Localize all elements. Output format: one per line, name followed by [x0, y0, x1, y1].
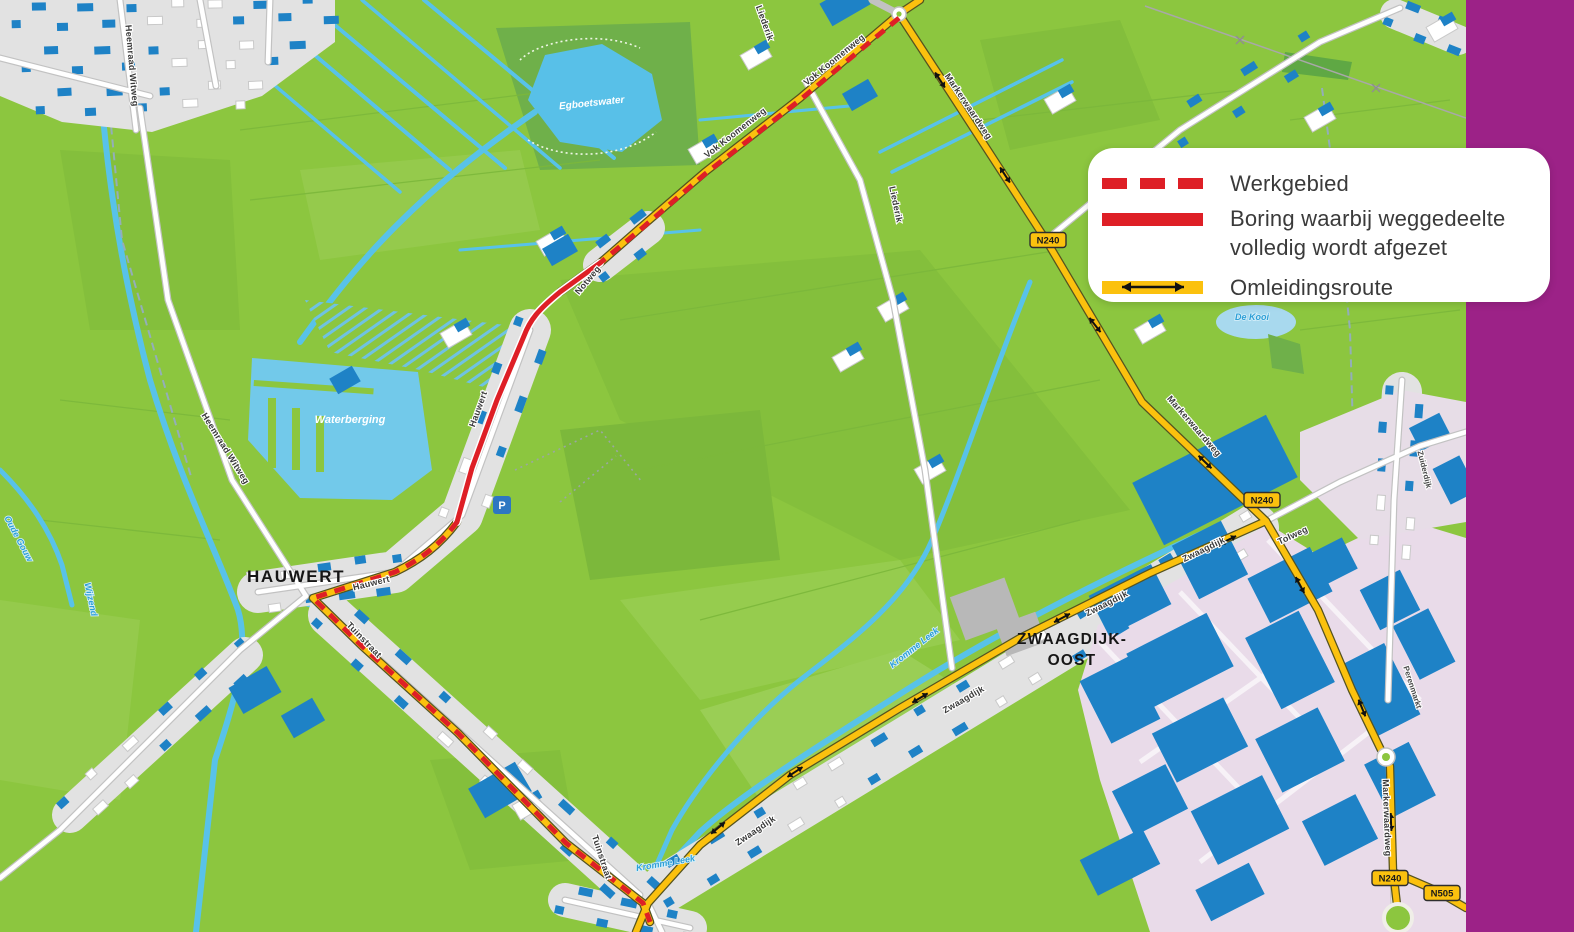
legend-label: Werkgebied	[1230, 169, 1349, 198]
legend-card: Werkgebied Boring waarbij weggedeelte vo…	[1088, 148, 1550, 302]
legend-label: Boring waarbij weggedeelte volledig word…	[1230, 204, 1505, 262]
place-label-zwaagdijk-oost: OOST	[1048, 652, 1097, 669]
place-label-hauwert: HAUWERT	[247, 567, 345, 586]
legend-item-omleidingsroute: Omleidingsroute	[1102, 266, 1528, 308]
legend-item-boring: Boring waarbij weggedeelte volledig word…	[1102, 204, 1528, 266]
water-label: Waterberging	[315, 414, 386, 426]
svg-text:P: P	[498, 500, 505, 512]
boring-solid-line-icon	[1102, 213, 1206, 226]
legend-item-werkgebied: Werkgebied	[1102, 162, 1528, 204]
water-label: De Kooi	[1235, 312, 1270, 322]
svg-text:N240: N240	[1037, 236, 1060, 247]
place-label-zwaagdijk-oost: ZWAAGDIJK-	[1017, 631, 1127, 648]
svg-text:N240: N240	[1251, 496, 1274, 507]
werkgebied-dashed-line-icon	[1102, 178, 1206, 189]
map: P N240 N240 N240 N505 HAUWERT ZWAAGDIJK-…	[0, 0, 1466, 932]
parking-icon: P	[493, 496, 511, 514]
legend-label: Omleidingsroute	[1230, 273, 1393, 302]
n240-badge: N240	[1030, 233, 1066, 248]
n240-badge: N240	[1372, 871, 1408, 886]
n505-badge: N505	[1424, 886, 1460, 901]
omleidingsroute-arrow-icon	[1102, 281, 1206, 294]
svg-text:N240: N240	[1379, 874, 1402, 885]
n240-badge: N240	[1244, 493, 1280, 508]
svg-text:N505: N505	[1431, 889, 1454, 900]
page: { "legend": { "items": [ { "id": "werkge…	[0, 0, 1574, 932]
sidebar-accent	[1466, 0, 1574, 932]
map-canvas: P N240 N240 N240 N505 HAUWERT ZWAAGDIJK-…	[0, 0, 1466, 932]
